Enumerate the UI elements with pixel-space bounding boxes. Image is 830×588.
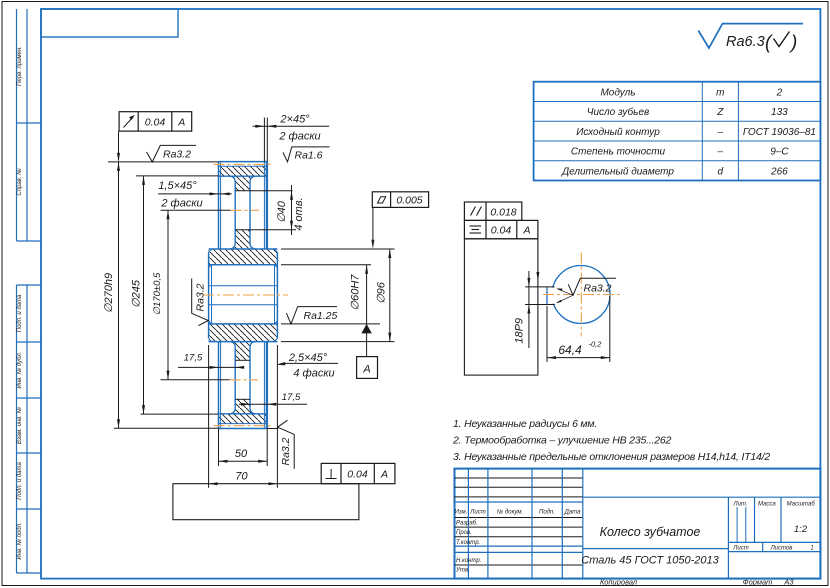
- svg-text:Подп. и дата: Подп. и дата: [17, 294, 23, 332]
- svg-text:0.005: 0.005: [396, 195, 422, 207]
- svg-text:0.04: 0.04: [347, 469, 368, 481]
- svg-text:2 фаски: 2 фаски: [278, 131, 320, 143]
- svg-text:Степень точности: Степень точности: [571, 147, 666, 158]
- svg-text:∅245: ∅245: [131, 279, 143, 308]
- svg-text:∅40: ∅40: [276, 200, 288, 223]
- svg-text:ГОСТ 19036–81: ГОСТ 19036–81: [743, 127, 816, 138]
- svg-text:Ra3.2: Ra3.2: [194, 283, 206, 311]
- svg-text:50: 50: [235, 448, 248, 460]
- svg-text:d: d: [718, 166, 724, 177]
- svg-text:17,5: 17,5: [282, 392, 301, 403]
- svg-text:18P9: 18P9: [514, 318, 526, 344]
- svg-text:Ra3.2: Ra3.2: [163, 149, 191, 161]
- svg-text:Делительный диаметр: Делительный диаметр: [561, 166, 674, 177]
- svg-text:Число зубьев: Число зубьев: [587, 106, 649, 118]
- svg-text:A3: A3: [783, 578, 794, 587]
- svg-text:2,5×45°: 2,5×45°: [288, 352, 328, 364]
- svg-text:266: 266: [770, 166, 788, 177]
- svg-text:0.04: 0.04: [491, 225, 512, 237]
- svg-text:Подп. и дата: Подп. и дата: [17, 462, 23, 500]
- svg-text:1: 1: [810, 546, 813, 552]
- svg-text:А: А: [380, 469, 388, 481]
- svg-text:А: А: [362, 364, 370, 376]
- svg-text:Модуль: Модуль: [600, 87, 635, 98]
- svg-text:3. Неуказанные предельные откл: 3. Неуказанные предельные отклонения раз…: [453, 451, 770, 463]
- svg-text:–: –: [717, 127, 724, 138]
- svg-text:Копировал: Копировал: [600, 578, 638, 587]
- svg-text:Инв. № подл.: Инв. № подл.: [16, 522, 23, 559]
- svg-text:А: А: [177, 117, 185, 129]
- svg-text:Формат: Формат: [743, 578, 773, 587]
- svg-text:133: 133: [771, 107, 788, 118]
- svg-text:∅60H7: ∅60H7: [350, 274, 362, 311]
- svg-text:Пров.: Пров.: [456, 530, 472, 536]
- svg-text:Инв. № дубл.: Инв. № дубл.: [16, 352, 23, 389]
- svg-text:Н.контр.: Н.контр.: [456, 558, 481, 564]
- svg-text:Взам. инв. №: Взам. инв. №: [16, 406, 23, 444]
- svg-text:Ra3.2: Ra3.2: [280, 437, 292, 465]
- svg-text:Колесо зубчатое: Колесо зубчатое: [600, 525, 701, 539]
- svg-text:4 фаски: 4 фаски: [293, 368, 334, 380]
- svg-text:Изм.: Изм.: [455, 510, 468, 516]
- svg-text:Лист: Лист: [469, 510, 485, 516]
- svg-text:m: m: [716, 87, 724, 98]
- svg-text:Подп.: Подп.: [539, 510, 555, 516]
- svg-text:): ): [789, 33, 797, 54]
- svg-text:0.018: 0.018: [490, 207, 516, 219]
- svg-text:–: –: [717, 147, 724, 158]
- svg-text:1:2: 1:2: [794, 524, 808, 535]
- svg-text:Ra1.25: Ra1.25: [304, 310, 338, 322]
- svg-text:Z: Z: [716, 107, 724, 118]
- svg-text:9–С: 9–С: [770, 147, 789, 158]
- svg-text:∅96: ∅96: [376, 281, 388, 304]
- svg-text:1. Неуказанные радиусы 6 мм.: 1. Неуказанные радиусы 6 мм.: [453, 418, 597, 430]
- svg-text:∅270h9: ∅270h9: [103, 273, 115, 313]
- svg-text:Утв.: Утв.: [455, 568, 470, 574]
- svg-text:1,5×45°: 1,5×45°: [158, 180, 197, 192]
- svg-text:∅170±0,5: ∅170±0,5: [152, 272, 163, 315]
- svg-text:Исходный контур: Исходный контур: [576, 127, 660, 138]
- svg-text:Масса: Масса: [758, 502, 776, 508]
- svg-text:Сталь 45 ГОСТ 1050-2013: Сталь 45 ГОСТ 1050-2013: [581, 555, 719, 567]
- svg-text:Разраб.: Разраб.: [456, 521, 478, 527]
- svg-text:70: 70: [235, 471, 248, 483]
- svg-text:Лит.: Лит.: [732, 502, 747, 508]
- svg-text:Масштаб: Масштаб: [787, 502, 816, 508]
- svg-text:Справ. №: Справ. №: [16, 168, 23, 196]
- svg-text:Перв. примен.: Перв. примен.: [17, 46, 23, 86]
- svg-text:Ra6.3: Ra6.3: [726, 34, 765, 50]
- svg-text:2×45°: 2×45°: [279, 114, 310, 126]
- svg-text:Ra1.6: Ra1.6: [295, 150, 323, 162]
- svg-text:Листов: Листов: [770, 546, 793, 552]
- svg-text:4 отв.: 4 отв.: [293, 197, 305, 230]
- svg-text:2 фаски: 2 фаски: [160, 198, 202, 210]
- svg-text:17,5: 17,5: [184, 353, 203, 364]
- svg-text:-0,2: -0,2: [589, 340, 603, 349]
- svg-text:Лист: Лист: [732, 546, 748, 552]
- svg-text:64,4: 64,4: [558, 343, 582, 357]
- svg-text:А: А: [522, 225, 530, 237]
- svg-text:2: 2: [776, 87, 783, 98]
- svg-text:Ra3.2: Ra3.2: [584, 283, 612, 295]
- svg-text:Т.контр.: Т.контр.: [456, 540, 480, 546]
- svg-text:2. Термообработка – улучшение: 2. Термообработка – улучшение НВ 235...2…: [452, 435, 672, 447]
- svg-text:0.04: 0.04: [145, 117, 166, 129]
- svg-text:Дата: Дата: [564, 510, 581, 516]
- svg-text:№ докум.: № докум.: [497, 509, 523, 516]
